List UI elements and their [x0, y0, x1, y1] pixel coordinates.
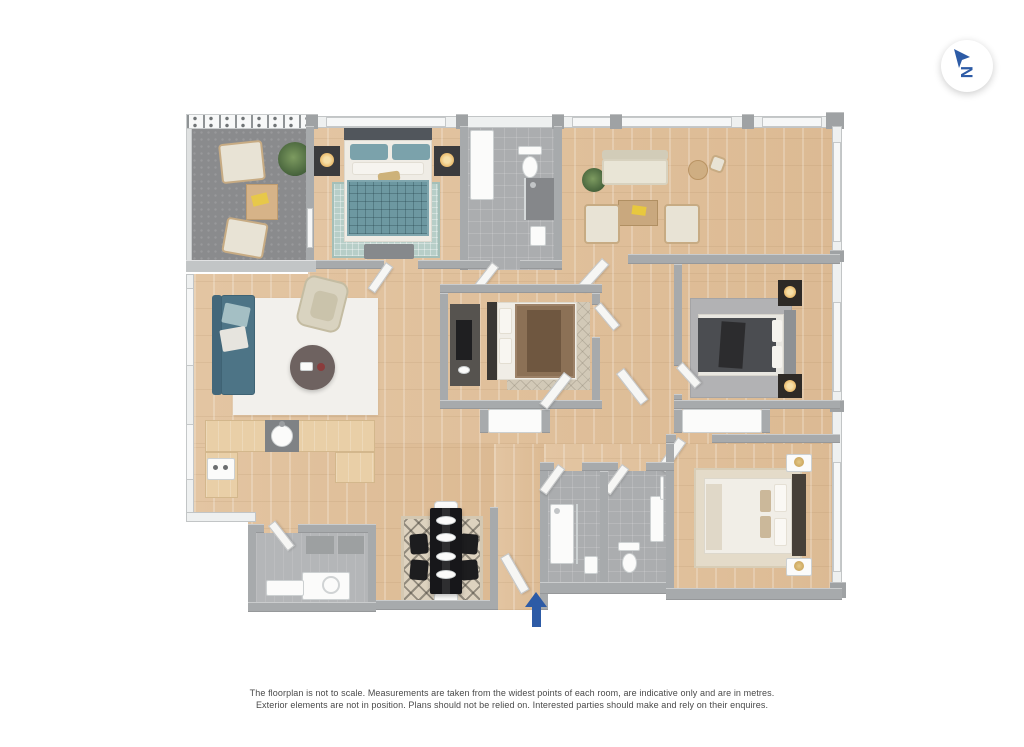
- bedroom2-pillow: [499, 338, 512, 364]
- window: [762, 117, 822, 127]
- terrace-door-window: [307, 208, 313, 248]
- bedroom4-accent-pillow: [760, 516, 771, 538]
- compass-icon: N: [941, 40, 993, 92]
- kitchen-hob-icon: [207, 458, 235, 480]
- disclaimer: The floorplan is not to scale. Measureme…: [0, 688, 1024, 711]
- bedroom2-tv-icon: [456, 320, 472, 360]
- disclaimer-line-1: The floorplan is not to scale. Measureme…: [0, 688, 1024, 700]
- wall: [540, 582, 666, 594]
- utility-cabinet: [306, 536, 334, 554]
- wall: [248, 524, 256, 612]
- wall: [440, 284, 602, 293]
- wall-post: [610, 114, 622, 129]
- floorplan-page: N: [0, 0, 1024, 747]
- floorplan-render: [186, 112, 856, 646]
- bedroom3-pillow: [772, 346, 782, 368]
- kitchen-sink-icon: [271, 425, 293, 447]
- wall: [582, 462, 618, 471]
- wc-toilet-tank: [618, 542, 640, 551]
- bedroom2-bed-headboard: [487, 302, 497, 380]
- wall: [540, 462, 554, 471]
- bedroom1-duvet: [347, 180, 429, 236]
- wall-post: [742, 114, 754, 129]
- bedroom1-lamp-right-icon: [440, 153, 454, 167]
- reception-sofa: [602, 159, 668, 185]
- bedroom1-pillow: [392, 144, 430, 160]
- dining-chair: [459, 533, 479, 554]
- dining-chair: [409, 559, 429, 580]
- terrace-armchair-1: [218, 140, 266, 184]
- bedroom3-pillow: [772, 320, 782, 342]
- dining-chair: [459, 559, 479, 580]
- wall: [674, 264, 682, 366]
- bedroom3-wardrobe: [682, 409, 762, 433]
- wall: [480, 409, 488, 433]
- living-table-remote: [300, 362, 313, 371]
- hob-knob: [223, 465, 228, 470]
- compass-north-label: N: [957, 66, 976, 78]
- wall: [646, 462, 674, 471]
- wall: [592, 337, 600, 408]
- exterior-mask: [186, 522, 248, 614]
- bedroom1-bed-headboard: [344, 128, 432, 140]
- dining-plate: [436, 533, 456, 542]
- wall: [628, 254, 840, 264]
- wall: [554, 126, 562, 270]
- bedroom1-lamp-left-icon: [320, 153, 334, 167]
- wall: [712, 434, 840, 443]
- bedroom3-lamp-top-icon: [784, 286, 796, 298]
- wall: [674, 409, 682, 433]
- shower-room-basin: [584, 556, 598, 574]
- wall: [520, 260, 562, 269]
- wc-basin-counter: [650, 496, 664, 542]
- window: [326, 117, 446, 127]
- bedroom4-brass-lamp-icon: [794, 457, 804, 467]
- living-sofa-cushion: [219, 326, 248, 352]
- wall: [666, 588, 842, 600]
- wall: [248, 602, 376, 612]
- bedroom2-dresser-item: [458, 366, 470, 374]
- wall: [600, 471, 608, 584]
- utility-shelf: [266, 580, 304, 596]
- shower-head-icon: [554, 508, 560, 514]
- wc-towel-rail: [660, 476, 664, 500]
- dining-plate: [436, 570, 456, 579]
- reception-armchair-right: [664, 204, 700, 244]
- window: [572, 117, 732, 127]
- wall: [460, 260, 490, 269]
- bedroom3-bed-headboard: [784, 310, 796, 380]
- bedroom4-brass-lamp-icon: [794, 561, 804, 571]
- bathroom1-cabinet: [470, 130, 494, 200]
- bedroom4-pillow: [774, 484, 787, 512]
- bedroom2-wardrobe: [488, 409, 542, 433]
- bedroom4-accent-pillow: [760, 490, 771, 512]
- bedroom3-lamp-bottom-icon: [784, 380, 796, 392]
- bedroom1-pillow: [350, 144, 388, 160]
- bathroom1-basin: [530, 226, 546, 246]
- kitchen-faucet-icon: [279, 421, 285, 427]
- window: [833, 302, 841, 392]
- wall: [306, 260, 384, 269]
- appliance-drum-icon: [322, 576, 340, 594]
- bedroom1-bench: [364, 244, 414, 259]
- exterior-wall-step: [186, 512, 256, 522]
- entrance-arrow-icon: [525, 592, 549, 630]
- dining-plate: [436, 516, 456, 525]
- shower-tray: [550, 504, 574, 564]
- living-table-cup: [317, 363, 325, 371]
- bedroom3-throw: [718, 321, 745, 369]
- window: [186, 288, 194, 366]
- bedroom4-bed-headboard: [792, 474, 806, 556]
- shower-head-icon: [530, 182, 536, 188]
- reception-book: [631, 205, 646, 216]
- terrace-armchair-2: [221, 217, 269, 260]
- bedroom4-pillow: [774, 518, 787, 546]
- entrance-arrow-stem: [532, 607, 541, 627]
- wall: [440, 400, 602, 409]
- window: [833, 142, 841, 242]
- wall: [762, 409, 770, 433]
- utility-cabinet: [338, 536, 364, 554]
- hob-knob: [213, 465, 218, 470]
- reception-bistro-table: [688, 160, 708, 180]
- shower-glass: [524, 178, 526, 220]
- wall: [674, 400, 840, 409]
- terrace-side-wall: [186, 128, 192, 264]
- wall: [298, 524, 376, 533]
- bedroom2-blanket: [527, 310, 561, 372]
- wall: [460, 126, 468, 270]
- wall: [376, 600, 494, 610]
- wall: [440, 293, 448, 408]
- dining-plate: [436, 552, 456, 561]
- terrace-railing: [186, 114, 316, 129]
- shower-glass-screen: [576, 504, 578, 564]
- kitchen-counter-right: [335, 452, 375, 483]
- bedroom2-pillow: [499, 308, 512, 334]
- wall: [542, 409, 550, 433]
- window: [186, 424, 194, 480]
- compass: N: [941, 40, 993, 92]
- wall: [368, 524, 376, 612]
- entrance-arrow-head: [525, 592, 547, 607]
- disclaimer-line-2: Exterior elements are not in position. P…: [0, 700, 1024, 712]
- bedroom4-throw: [706, 484, 722, 550]
- dining-chair: [409, 533, 429, 554]
- toilet-bowl-icon: [522, 156, 538, 178]
- reception-armchair-left: [584, 204, 620, 244]
- toilet-icon: [518, 146, 542, 155]
- wall: [490, 507, 498, 610]
- wall: [418, 260, 460, 269]
- wc-toilet-bowl: [622, 553, 637, 573]
- wall: [186, 260, 316, 270]
- window: [833, 462, 841, 572]
